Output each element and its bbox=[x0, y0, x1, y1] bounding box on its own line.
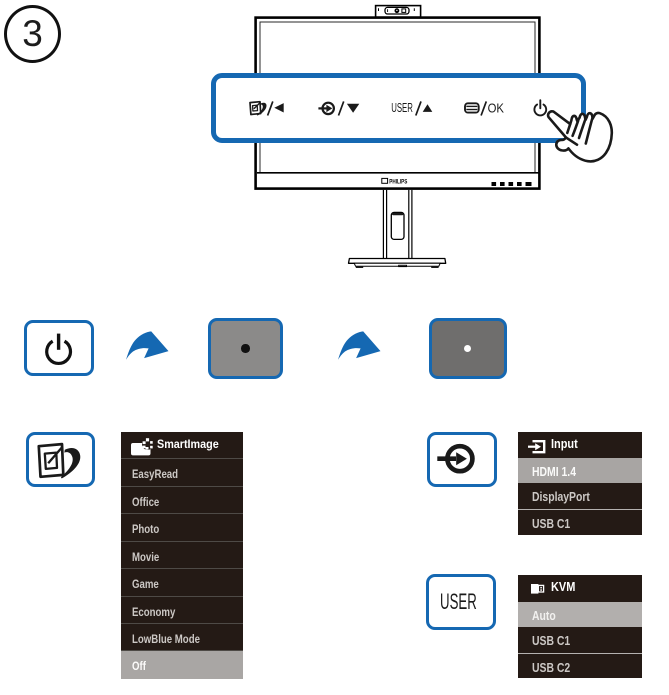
svg-text:OK: OK bbox=[488, 101, 504, 116]
svg-text:PHILIPS: PHILIPS bbox=[389, 179, 408, 186]
svg-text:USER: USER bbox=[391, 101, 413, 116]
